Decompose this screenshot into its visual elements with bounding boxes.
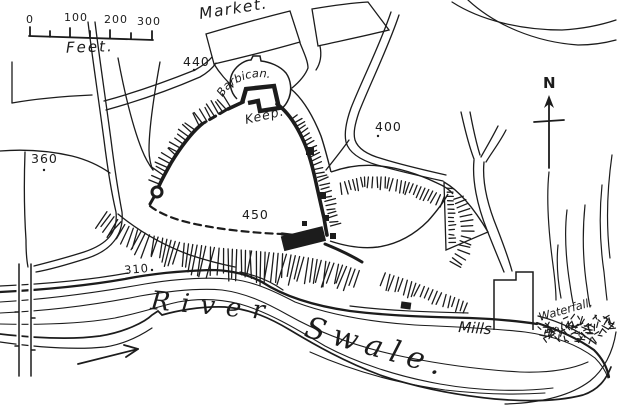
east-bailey-outline xyxy=(291,89,453,248)
streams xyxy=(548,155,612,307)
map-labels: Market. Barbican. Keep. Mills Waterfall.… xyxy=(148,0,594,385)
compass-icon: N xyxy=(534,74,564,168)
spot-height-360: 360 xyxy=(31,151,58,166)
spot-height-310: 310 xyxy=(124,261,150,277)
bridge xyxy=(15,264,35,376)
keep-label: Keep. xyxy=(243,103,285,127)
scale-tick-100: 100 xyxy=(64,11,88,24)
map-canvas: Hall. 0 100 200 300 Feet. N Market. Barb… xyxy=(0,0,617,407)
spot-height-dots xyxy=(43,69,379,271)
compass-north-label: N xyxy=(543,74,557,92)
scale-unit-label: Feet. xyxy=(66,37,114,57)
hall-building: Hall. xyxy=(281,226,326,251)
waterfall-label: Waterfall. xyxy=(537,295,594,324)
spot-height-440: 440 xyxy=(183,54,210,69)
castle: Hall. xyxy=(150,56,453,262)
wall-towers xyxy=(302,147,336,239)
scale-bar: 0 100 200 300 Feet. xyxy=(26,11,161,57)
scale-tick-0: 0 xyxy=(26,13,34,26)
slope-hachures xyxy=(96,94,474,313)
spot-height-450: 450 xyxy=(242,207,269,222)
mills-label: Mills xyxy=(458,318,493,338)
river-name-word1: River xyxy=(148,286,277,327)
castle-town-plan-map: Hall. 0 100 200 300 Feet. N Market. Barb… xyxy=(0,0,617,407)
scale-tick-300: 300 xyxy=(137,15,161,28)
spot-height-400: 400 xyxy=(375,119,402,134)
scale-tick-200: 200 xyxy=(104,13,128,26)
round-tower xyxy=(152,187,162,197)
